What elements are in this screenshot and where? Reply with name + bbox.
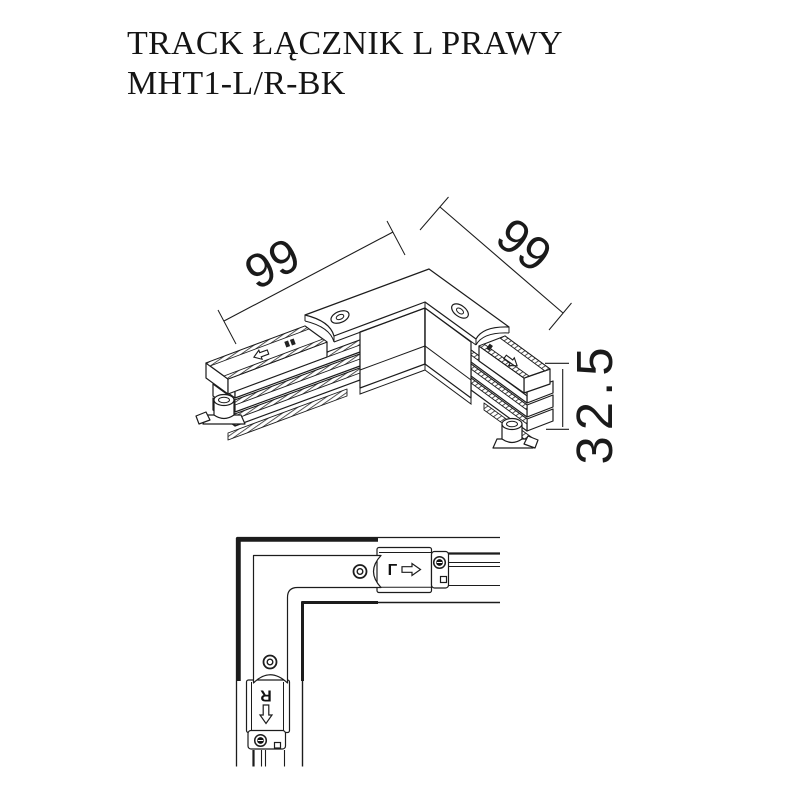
- product-drawing-page: TRACK ŁĄCZNIK L PRAWY MHT1-L/R-BK: [0, 0, 800, 800]
- dim-label-height: 32.5: [566, 341, 623, 464]
- corner-cover-plate: [254, 556, 382, 684]
- svg-text:L: L: [388, 560, 398, 577]
- technical-drawing: 99 99 32.5: [0, 0, 800, 800]
- inner-edge: [302, 602, 501, 767]
- coupler-right: L: [377, 548, 449, 593]
- coupler-right-letter: L: [388, 560, 398, 577]
- dim-label-left-99: 99: [237, 228, 309, 300]
- coupler-bottom-letter: R: [260, 687, 272, 704]
- svg-text:R: R: [260, 687, 272, 704]
- dimension-height: 32.5: [545, 341, 623, 464]
- coupler-bottom: R: [247, 680, 290, 749]
- dim-label-right-99: 99: [486, 208, 561, 283]
- perspective-view: 99 99 32.5: [196, 197, 623, 465]
- top-view: L R: [236, 538, 500, 767]
